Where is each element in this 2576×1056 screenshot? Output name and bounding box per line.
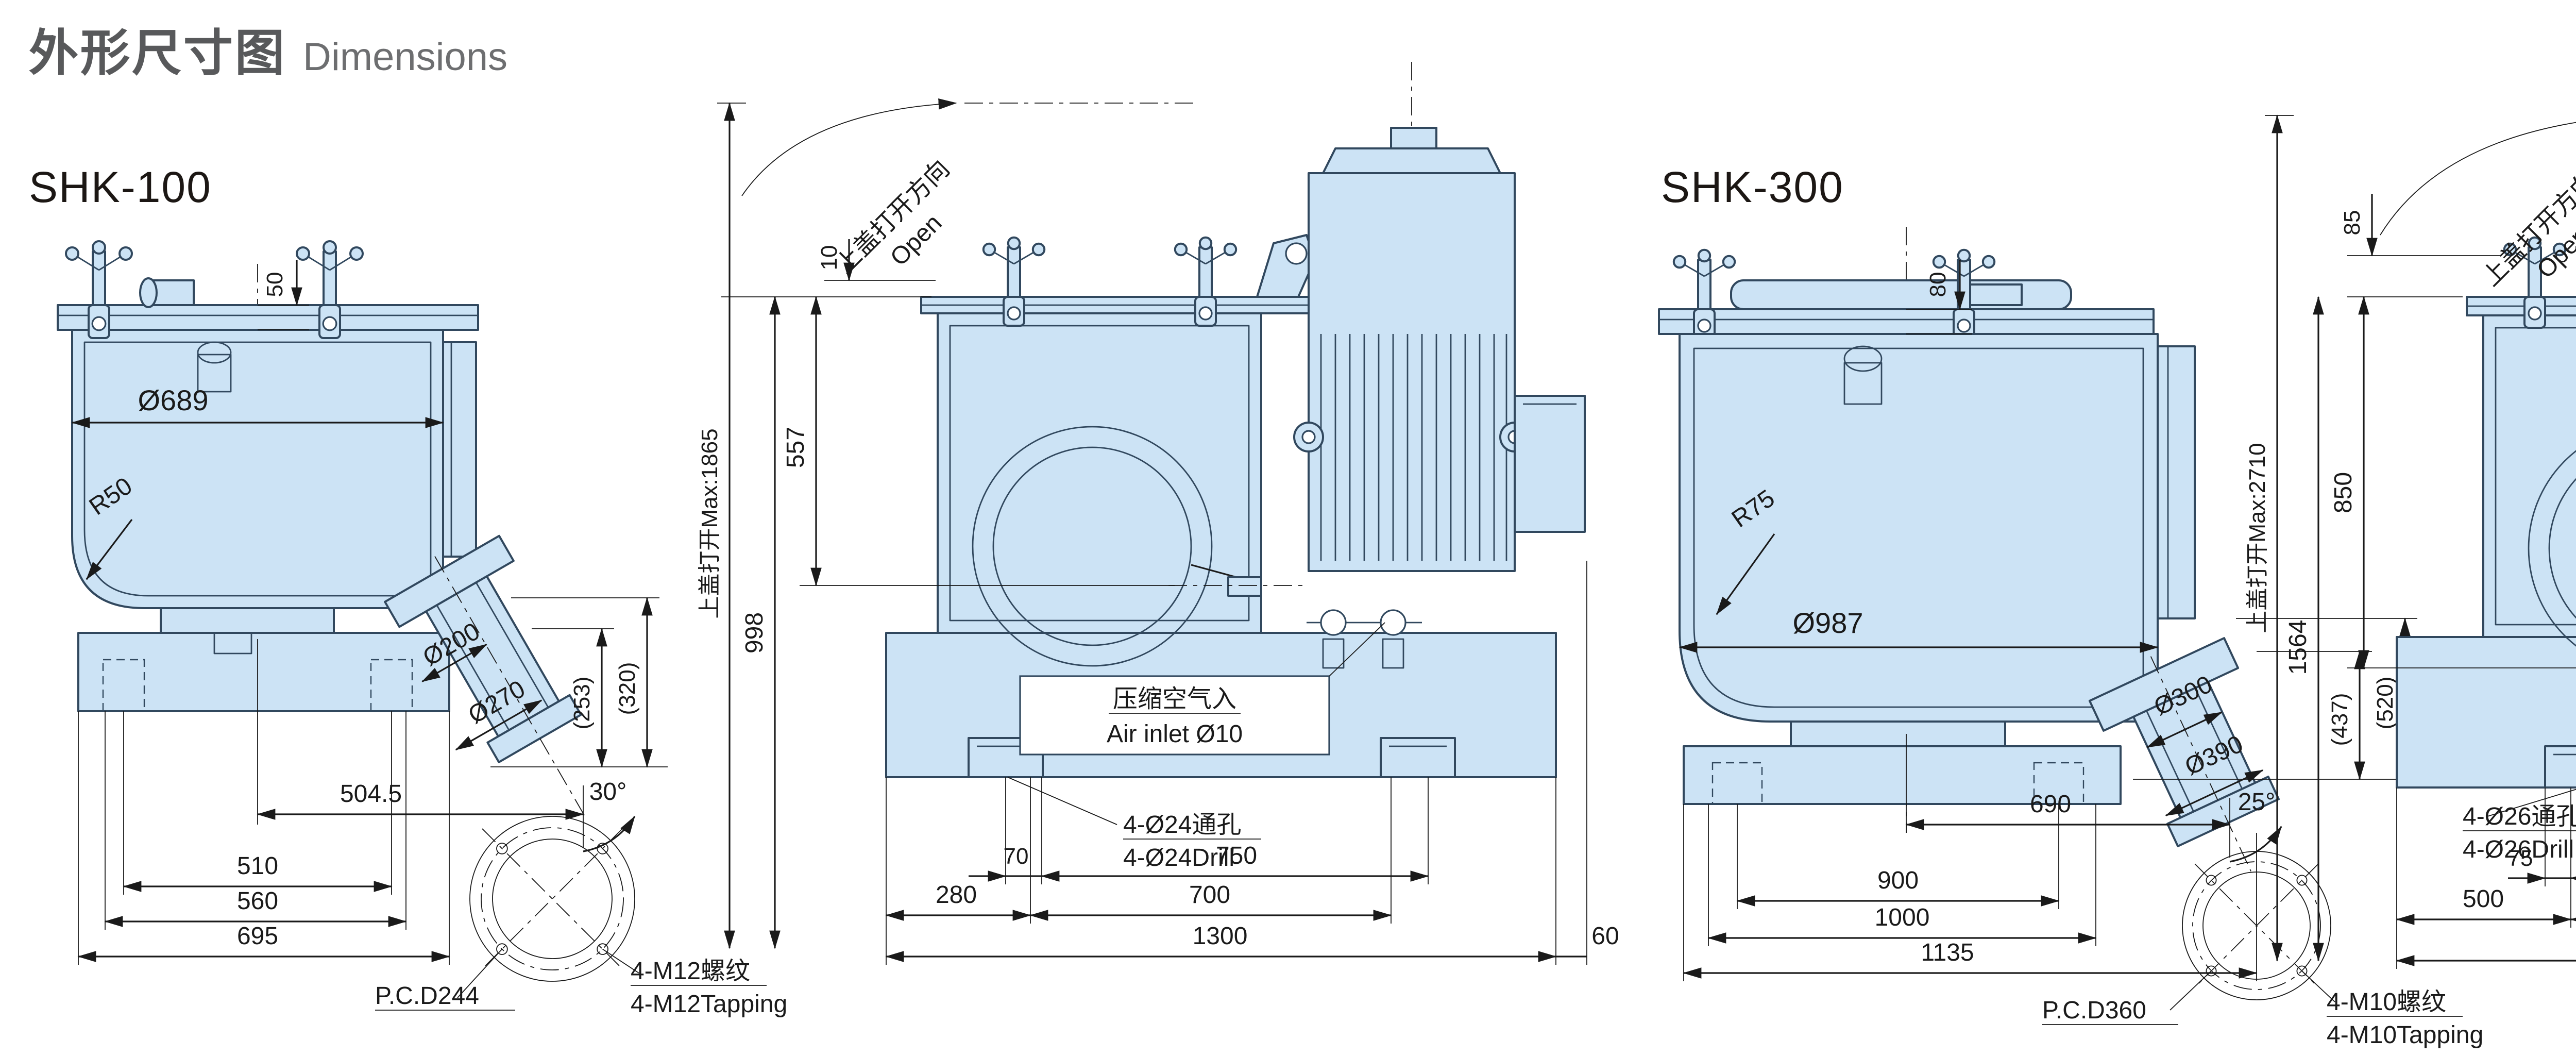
dim-chute-drop-inner: (253)	[569, 677, 595, 730]
dim-pcd: P.C.D360	[2042, 997, 2146, 1024]
dim-rim-height: 850	[2330, 472, 2357, 513]
dim-vessel-diameter: Ø689	[138, 384, 209, 416]
vessel-body	[1680, 334, 2158, 722]
dim-lid-gap: 80	[1925, 272, 1951, 297]
dim-base-width: 560	[237, 887, 278, 915]
ball-valve	[1228, 577, 1261, 596]
drill-label-zh: 4-Ø24通孔	[1123, 811, 1241, 839]
page-title: 外形尺寸图Dimensions	[29, 12, 507, 85]
air-inlet-label-zh: 压缩空气入	[1113, 685, 1236, 713]
dim-base-width: 1000	[1875, 904, 1930, 931]
dim-lid-lift: 85	[2340, 210, 2365, 236]
base-neck	[161, 608, 334, 633]
shk300-side-drawing: 上盖打开方向 Open 上盖打开Max:2710 85 1564 850 4-Ø…	[2257, 29, 2576, 1051]
motor	[1309, 173, 1515, 571]
dim-hole-span: 750	[1216, 842, 1257, 869]
dim-foot-width: 70	[1004, 844, 1029, 869]
model-label-shk300: SHK-300	[1661, 165, 1844, 214]
dim-rear-gap: 60	[1591, 923, 1619, 950]
shk100-side-machine: 压缩空气入 Air inlet Ø10	[886, 62, 1585, 777]
shk100-front-machine	[58, 241, 642, 850]
drill-label-zh: 4-Ø26通孔	[2463, 803, 2576, 830]
foot-right	[1381, 738, 1455, 777]
page-title-en: Dimensions	[303, 37, 507, 80]
dim-body-height: 1564	[2284, 620, 2312, 675]
lid-hinge-bracket	[1257, 235, 1315, 297]
dim-chute-offset: 504.5	[340, 780, 402, 808]
dim-open-max: 上盖打开Max:1865	[697, 428, 722, 618]
base-neck	[1791, 722, 2005, 746]
dim-body-height: 998	[741, 612, 768, 653]
air-inlet-label-en: Air inlet Ø10	[1107, 720, 1243, 748]
vessel-lid	[58, 305, 478, 330]
shk300-side-machine	[2397, 66, 2576, 787]
dim-overall-length: 1300	[1193, 923, 1248, 950]
dim-foot-span: 700	[1189, 881, 1230, 909]
base	[78, 633, 449, 711]
dim-front-offset: 500	[2463, 885, 2504, 913]
dim-overall-width: 1135	[1921, 939, 1974, 966]
foot-left	[2545, 746, 2576, 787]
page-title-zh: 外形尺寸图	[29, 27, 286, 82]
shk300-front-machine	[1659, 227, 2318, 902]
dim-chute-offset: 690	[2030, 791, 2071, 818]
dim-overall-width: 695	[237, 923, 278, 950]
dim-pcd: P.C.D244	[375, 982, 479, 1010]
vessel-body	[938, 313, 1261, 633]
shk100-side-drawing: 压缩空气入 Air inlet Ø10 上盖打开方向 Open 上盖打开Max:…	[705, 45, 1628, 1010]
dim-lid-gap: 50	[262, 272, 287, 297]
dim-rim-height: 557	[782, 427, 809, 468]
dim-vessel-diameter: Ø987	[1793, 607, 1863, 639]
dim-open-max: 上盖打开Max:2710	[2245, 443, 2270, 633]
side-bracket	[443, 342, 476, 557]
dim-bolt-span: 900	[1877, 867, 1919, 894]
side-bracket	[2158, 346, 2195, 618]
junction-box	[1515, 396, 1585, 532]
motor-fan-cowl	[1323, 148, 1500, 173]
dim-chute-drop-outer: (320)	[615, 662, 640, 715]
vessel-lid	[1659, 309, 2154, 334]
vessel-body	[2483, 315, 2576, 637]
model-label-shk100: SHK-100	[29, 165, 212, 214]
dim-foot-width: 75	[2508, 846, 2533, 871]
dim-lid-lift: 10	[817, 245, 842, 271]
dim-bolt-span: 510	[237, 852, 278, 880]
dim-chute-angle: 30°	[589, 778, 627, 806]
dimensions-sheet: 外形尺寸图Dimensions SHK-100 SHK-300	[0, 0, 2576, 1056]
pressure-gauge	[1321, 610, 1346, 635]
lid-pipe-stub	[1968, 284, 2022, 305]
vessel-body	[72, 330, 443, 608]
dim-front-offset: 280	[936, 881, 977, 909]
